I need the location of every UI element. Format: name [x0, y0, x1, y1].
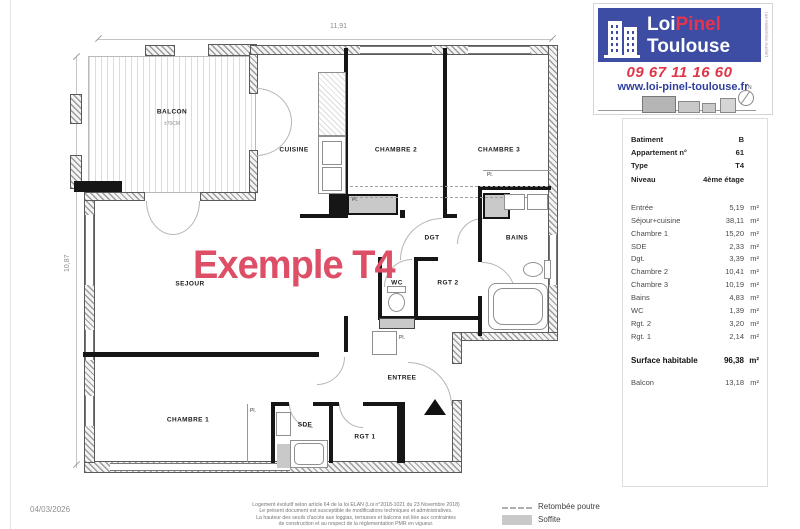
bathroom-sink [527, 194, 548, 210]
info-label: Batiment [631, 133, 710, 146]
room-area-row: Chambre 310,19m² [631, 279, 759, 292]
room-area: 10,19 [710, 279, 744, 292]
wall-sde-right [329, 402, 333, 463]
room-area-row: Chambre 115,20m² [631, 228, 759, 241]
apartment-info-panel: BatimentB Appartement n°61 TypeT4 Niveau… [622, 118, 768, 487]
door-arc [173, 201, 200, 235]
room-name: Rgt. 1 [631, 331, 710, 344]
bathtub-inner [493, 288, 543, 325]
wall-segment [329, 194, 347, 217]
room-area-row: Entrée5,19m² [631, 202, 759, 215]
legend-beam-label: Retombée poutre [538, 502, 600, 511]
room-unit: m² [744, 279, 759, 292]
wall-chambre2-chambre3 [443, 48, 447, 216]
wall-balcony-bottom [200, 192, 256, 201]
surface-total-row: Surface habitable96,38m² [631, 354, 759, 368]
room-unit: m² [744, 241, 759, 254]
legend-soffite-sample [502, 515, 532, 525]
room-label-rgt2: RGT 2 [437, 280, 458, 287]
room-name: Rgt. 2 [631, 318, 710, 331]
wall-rgt2-top [418, 257, 438, 261]
watermark-exemple-t4: Exemple T4 [193, 243, 395, 288]
building-icon [608, 21, 622, 55]
info-value: T4 [710, 159, 744, 172]
building-icon-windows [611, 25, 613, 28]
info-row: Appartement n°61 [631, 146, 759, 159]
room-label-chambre1: CHAMBRE 1 [167, 417, 209, 424]
building-icon-windows [627, 31, 629, 34]
legend-soffite-label: Soffite [538, 515, 561, 524]
info-value: 61 [710, 146, 744, 159]
window [110, 463, 290, 471]
room-name: Entrée [631, 202, 710, 215]
compass-icon [738, 90, 754, 106]
dimension-width-label: 11,91 [330, 23, 347, 30]
building-icon [624, 27, 637, 55]
closet-line [247, 404, 248, 462]
total-value: 96,38 [710, 354, 744, 368]
wall-segment [344, 316, 348, 352]
brand-box: LoiPinel Toulouse 09 67 11 16 60 www.loi… [593, 3, 773, 115]
sde-sink [276, 412, 291, 436]
room-name: Dgt. [631, 253, 710, 266]
balcony-value: 13,18 [710, 377, 744, 390]
info-row: Niveau4ème étage [631, 173, 759, 186]
soffite-block [277, 444, 290, 468]
window [85, 215, 94, 285]
room-area: 3,20 [710, 318, 744, 331]
total-label: Surface habitable [631, 354, 710, 368]
brand-word-toulouse: Toulouse [647, 37, 730, 56]
info-label: Appartement n° [631, 146, 710, 159]
room-area-row: SDE2,33m² [631, 241, 759, 254]
floorplan-sheet: 11,91 10,87 BALCON ±70CM Pl. Pl. [0, 0, 800, 529]
room-label-dgt: DGT [425, 235, 440, 242]
balcony-label: Balcon [631, 377, 710, 390]
room-unit: m² [744, 202, 759, 215]
window [85, 396, 94, 426]
brand-word-pinel: Pinel [676, 14, 721, 35]
total-unit: m² [744, 354, 759, 368]
balcony-area-row: Balcon13,18m² [631, 377, 759, 390]
room-area: 5,19 [710, 202, 744, 215]
room-area-row: Rgt. 23,20m² [631, 318, 759, 331]
room-unit: m² [744, 318, 759, 331]
wall-segment [313, 402, 339, 406]
wall-entry-right [452, 332, 462, 364]
room-name: Séjour+cuisine [631, 215, 710, 228]
room-name: Chambre 3 [631, 279, 710, 292]
wall-segment [271, 402, 289, 406]
door-arc [317, 357, 345, 385]
room-area-row: WC1,39m² [631, 305, 759, 318]
room-area-row: Bains4,83m² [631, 292, 759, 305]
toilet-bowl [388, 293, 405, 312]
room-name: Chambre 2 [631, 266, 710, 279]
apartment-header-group: BatimentB Appartement n°61 TypeT4 Niveau… [631, 133, 759, 186]
entry-arrow [424, 399, 446, 415]
wall-balcony-bottom [84, 192, 145, 201]
wall-wc-right [414, 257, 418, 320]
room-area: 10,41 [710, 266, 744, 279]
room-label-cuisine: CUISINE [279, 147, 308, 154]
room-unit: m² [744, 305, 759, 318]
brand-word-loi: Loi [647, 14, 676, 35]
info-value: B [710, 133, 744, 146]
room-area-row: Chambre 210,41m² [631, 266, 759, 279]
beam-dashed-line [350, 186, 548, 187]
siteplan-building [702, 103, 716, 113]
room-label-bains: BAINS [506, 235, 528, 242]
door-arc [146, 201, 173, 235]
kitchen-appliance [318, 72, 346, 136]
room-label-sde: SDE [298, 422, 313, 429]
building-icon-base [604, 55, 640, 58]
room-unit: m² [744, 266, 759, 279]
room-area: 4,83 [710, 292, 744, 305]
door-arc [339, 404, 363, 428]
wall-sde-left [271, 402, 275, 463]
dimension-height-label: 10,87 [64, 254, 71, 272]
wall-segment [363, 402, 405, 406]
window [468, 46, 530, 54]
closet [372, 331, 397, 355]
wall-bains-bottom [452, 332, 558, 341]
room-unit: m² [744, 228, 759, 241]
room-unit: m² [744, 331, 759, 344]
balcony-threshold-note: ±70CM [164, 121, 180, 127]
sheet-border-line [10, 0, 11, 529]
toilet-bowl [523, 262, 543, 277]
phone-number: 09 67 11 16 60 [598, 64, 761, 81]
room-area: 1,39 [710, 305, 744, 318]
window [360, 46, 432, 54]
room-label-balcon: BALCON [157, 109, 187, 116]
door-arc [256, 88, 292, 122]
wall-rgt1-right [397, 402, 405, 463]
shower-inner [294, 443, 324, 465]
compass-needle [741, 91, 750, 104]
room-label-chambre3: CHAMBRE 3 [478, 147, 520, 154]
dimension-tick [549, 35, 556, 42]
compass-north-label: N [748, 85, 752, 91]
room-name: SDE [631, 241, 710, 254]
wall-segment [443, 214, 457, 218]
closet-label: Pl. [250, 408, 256, 414]
brand-logo: LoiPinel Toulouse [598, 8, 761, 62]
room-area: 2,33 [710, 241, 744, 254]
info-label: Type [631, 159, 710, 172]
soffite-block [379, 318, 415, 329]
siteplan-building [642, 96, 676, 113]
street-name-label: rue Hubertine Auclert [763, 12, 768, 90]
room-unit: m² [744, 253, 759, 266]
room-name: Chambre 1 [631, 228, 710, 241]
kitchen-sink [322, 141, 342, 165]
plan-date: 04/03/2026 [30, 505, 70, 514]
room-area-row: Rgt. 12,14m² [631, 331, 759, 344]
kitchen-sink [322, 167, 342, 191]
room-area: 2,14 [710, 331, 744, 344]
room-area: 38,11 [710, 215, 744, 228]
room-label-entree: ENTREE [388, 375, 417, 382]
closet-label: Pl. [399, 335, 405, 341]
room-area-row: Séjour+cuisine38,11m² [631, 215, 759, 228]
room-area-row: Dgt.3,39m² [631, 253, 759, 266]
site-mini-plan: N [598, 94, 758, 112]
wall-segment [249, 150, 258, 193]
room-name: WC [631, 305, 710, 318]
siteplan-building [720, 98, 736, 113]
info-value: 4ème étage [694, 173, 744, 186]
toilet-tank [544, 260, 551, 279]
legal-disclaimer: Logement évolutif selon article 64 de la… [226, 502, 486, 529]
disclaimer-line: Le présent document est susceptible de m… [226, 508, 486, 514]
room-unit: m² [744, 292, 759, 305]
bathroom-sink [504, 194, 525, 210]
closet-label: Pl. [487, 172, 493, 178]
wall-segment [74, 181, 122, 192]
closet-line [483, 170, 551, 171]
wall-entry-right [452, 400, 462, 463]
room-label-chambre2: CHAMBRE 2 [375, 147, 417, 154]
legend-beam-sample [502, 507, 532, 509]
room-area: 15,20 [710, 228, 744, 241]
wall-segment [70, 94, 82, 124]
room-areas-group: Entrée5,19m² Séjour+cuisine38,11m² Chamb… [631, 202, 759, 344]
info-row: TypeT4 [631, 159, 759, 172]
balcony-unit: m² [744, 377, 759, 390]
disclaimer-line: de construction et au respect de la régl… [226, 521, 486, 527]
wall-segment [145, 45, 175, 56]
room-label-rgt1: RGT 1 [354, 434, 375, 441]
info-label: Niveau [631, 173, 694, 186]
wall-sejour-chambre1 [83, 352, 319, 357]
room-area: 3,39 [710, 253, 744, 266]
dimension-line-top [98, 39, 553, 40]
wall-right [548, 45, 558, 341]
siteplan-building [678, 101, 700, 113]
room-name: Bains [631, 292, 710, 305]
door-jamb [400, 210, 405, 218]
info-row: BatimentB [631, 133, 759, 146]
room-unit: m² [744, 215, 759, 228]
